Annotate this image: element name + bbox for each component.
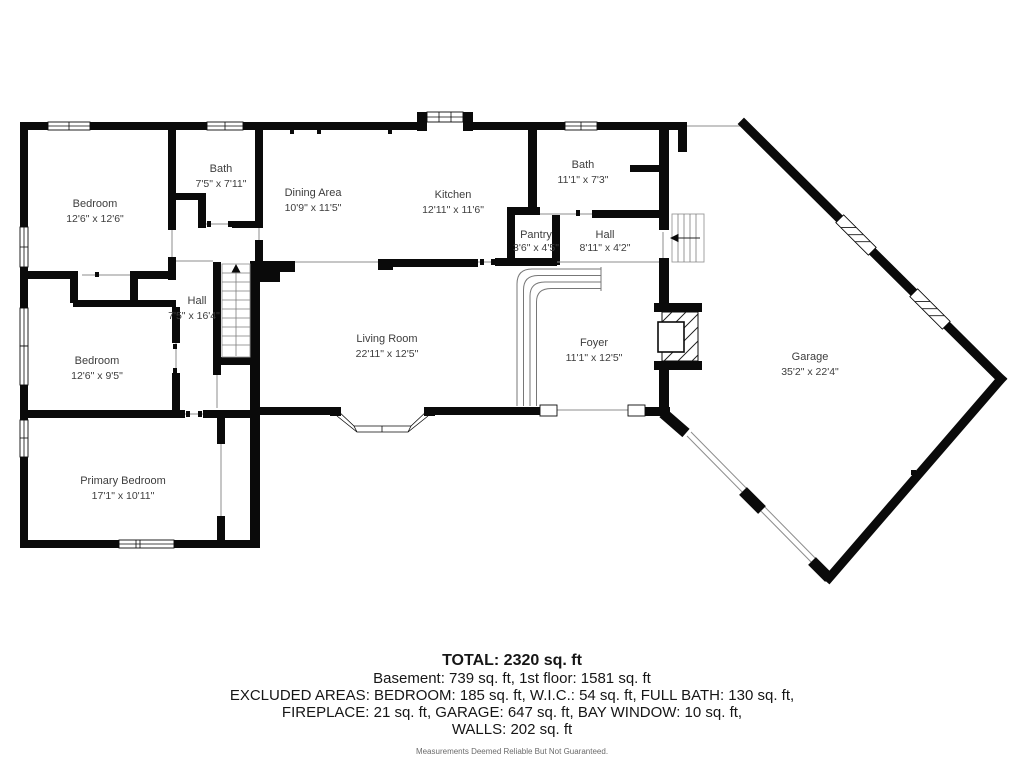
svg-text:Foyer: Foyer [580, 337, 608, 349]
svg-text:Hall: Hall [596, 229, 615, 241]
svg-text:7'5" x 16'4": 7'5" x 16'4" [168, 310, 220, 322]
room-label-foyer: Foyer 11'1" x 12'5" [566, 337, 623, 364]
summary-excluded-1: EXCLUDED AREAS: BEDROOM: 185 sq. ft, W.I… [0, 687, 1024, 704]
svg-text:Hall: Hall [188, 295, 207, 307]
svg-text:12'6" x 12'6": 12'6" x 12'6" [66, 213, 124, 225]
garage-window-1 [836, 215, 876, 255]
summary-total: TOTAL: 2320 sq. ft [0, 652, 1024, 670]
svg-text:17'1" x 10'11": 17'1" x 10'11" [92, 490, 155, 502]
summary-excluded-3: WALLS: 202 sq. ft [0, 721, 1024, 738]
svg-text:7'5" x 7'11": 7'5" x 7'11" [196, 178, 247, 190]
firebox [658, 322, 684, 352]
svg-text:22'11" x 12'5": 22'11" x 12'5" [356, 348, 419, 360]
svg-text:Dining Area: Dining Area [285, 187, 343, 199]
room-label-living-room: Living Room 22'11" x 12'5" [356, 333, 419, 360]
svg-text:11'1" x 7'3": 11'1" x 7'3" [558, 174, 609, 186]
room-label-bath-1: Bath 7'5" x 7'11" [196, 163, 247, 190]
garage-walls [663, 124, 1001, 578]
svg-text:Primary Bedroom: Primary Bedroom [80, 475, 166, 487]
svg-text:35'2" x 22'4": 35'2" x 22'4" [781, 366, 839, 378]
room-label-garage: Garage 35'2" x 22'4" [781, 351, 839, 378]
room-label-bath-2: Bath 11'1" x 7'3" [558, 159, 609, 186]
summary-excluded-2: FIREPLACE: 21 sq. ft, GARAGE: 647 sq. ft… [0, 704, 1024, 721]
svg-text:Pantry: Pantry [520, 229, 552, 241]
fireplace [654, 303, 702, 370]
entry-steps [670, 214, 704, 262]
svg-text:Bath: Bath [210, 163, 233, 175]
room-label-hall-upper: Hall 8'11" x 4'2" [580, 229, 631, 254]
room-label-bedroom-2: Bedroom 12'6" x 9'5" [71, 355, 123, 382]
svg-text:8'11" x 4'2": 8'11" x 4'2" [580, 242, 631, 254]
svg-text:Garage: Garage [792, 351, 829, 363]
room-label-primary-bedroom: Primary Bedroom 17'1" x 10'11" [80, 475, 166, 502]
svg-text:10'9" x 11'5": 10'9" x 11'5" [285, 202, 342, 214]
garage-window-2 [910, 289, 950, 329]
svg-text:11'1" x 12'5": 11'1" x 12'5" [566, 352, 623, 364]
summary-floors: Basement: 739 sq. ft, 1st floor: 1581 sq… [0, 670, 1024, 687]
svg-text:12'11" x 11'6": 12'11" x 11'6" [422, 204, 484, 216]
svg-text:12'6" x 9'5": 12'6" x 9'5" [71, 370, 123, 382]
area-summary: TOTAL: 2320 sq. ft Basement: 739 sq. ft,… [0, 652, 1024, 756]
svg-text:Bedroom: Bedroom [73, 198, 118, 210]
room-label-dining-area: Dining Area 10'9" x 11'5" [285, 187, 343, 214]
room-labels: Bedroom 12'6" x 12'6" Bath 7'5" x 7'11" … [66, 159, 839, 502]
svg-text:Bath: Bath [572, 159, 595, 171]
main-staircase [222, 264, 250, 357]
svg-text:3'6" x 4'5": 3'6" x 4'5" [513, 242, 559, 254]
kitchen-bay-window [417, 112, 473, 131]
svg-text:Kitchen: Kitchen [435, 189, 472, 201]
living-room-bay-window [330, 407, 435, 432]
summary-disclaimer: Measurements Deemed Reliable But Not Gua… [0, 747, 1024, 756]
svg-text:Bedroom: Bedroom [75, 355, 120, 367]
svg-text:Living Room: Living Room [356, 333, 417, 345]
room-label-kitchen: Kitchen 12'11" x 11'6" [422, 189, 484, 216]
room-label-bedroom-1: Bedroom 12'6" x 12'6" [66, 198, 124, 225]
